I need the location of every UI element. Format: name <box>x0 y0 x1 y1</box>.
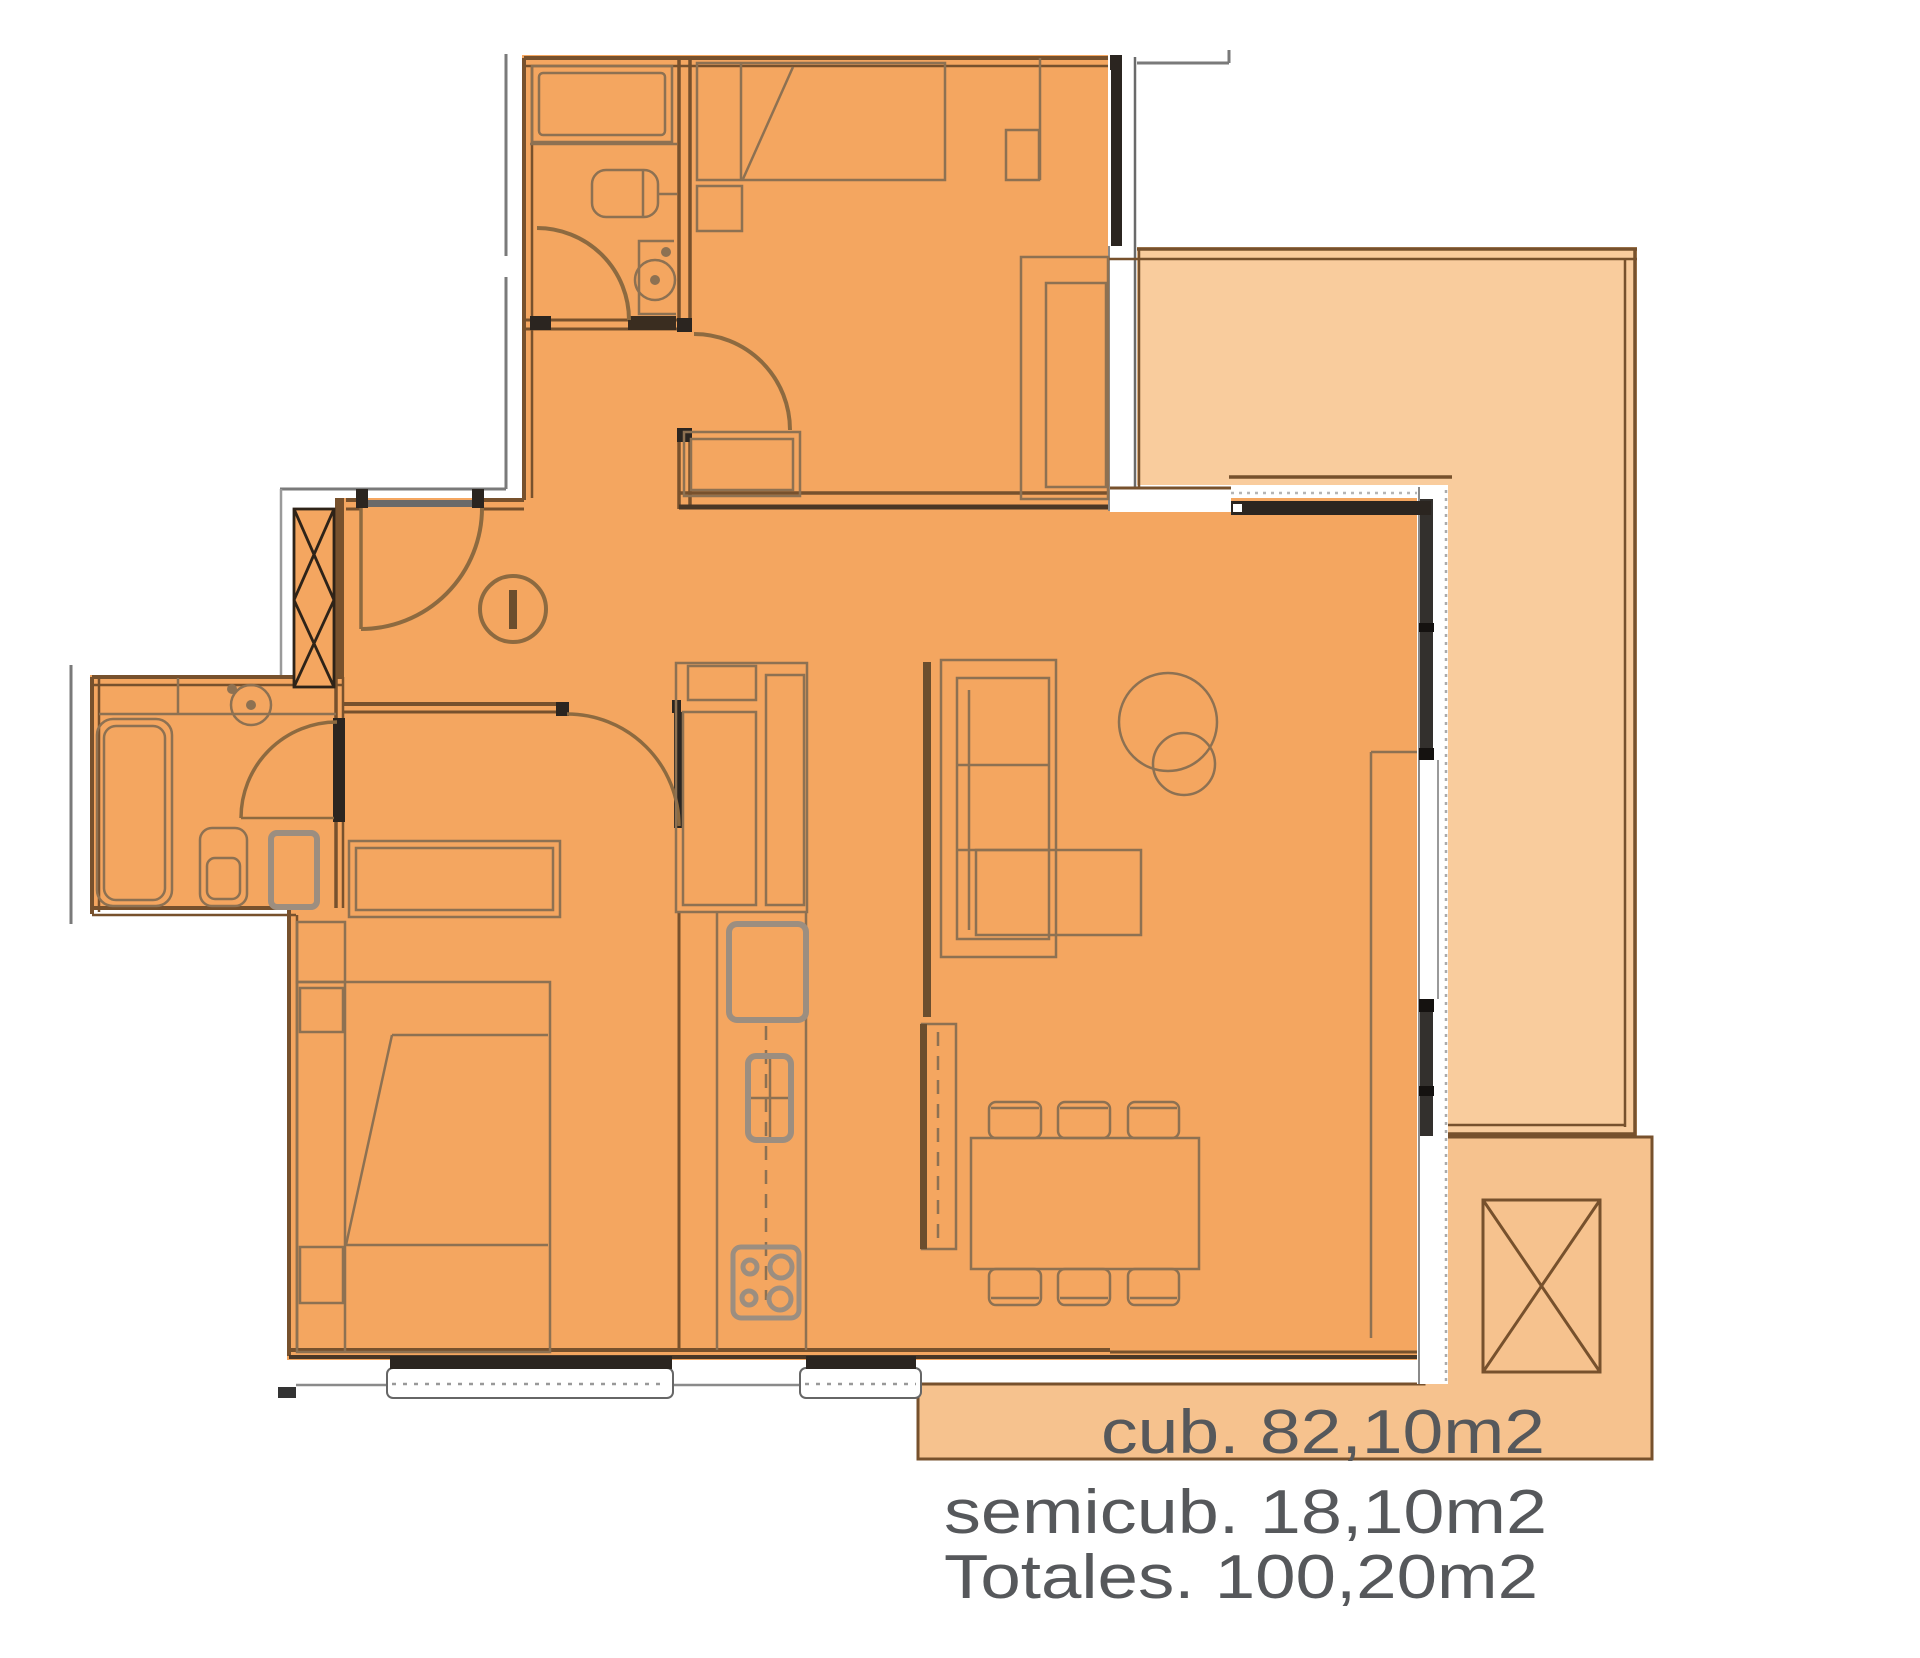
svg-text:cub. 82,10m2: cub. 82,10m2 <box>1101 1398 1545 1467</box>
svg-text:Totales. 100,20m2: Totales. 100,20m2 <box>944 1543 1538 1612</box>
svg-text:semicub. 18,10m2: semicub. 18,10m2 <box>944 1478 1547 1547</box>
